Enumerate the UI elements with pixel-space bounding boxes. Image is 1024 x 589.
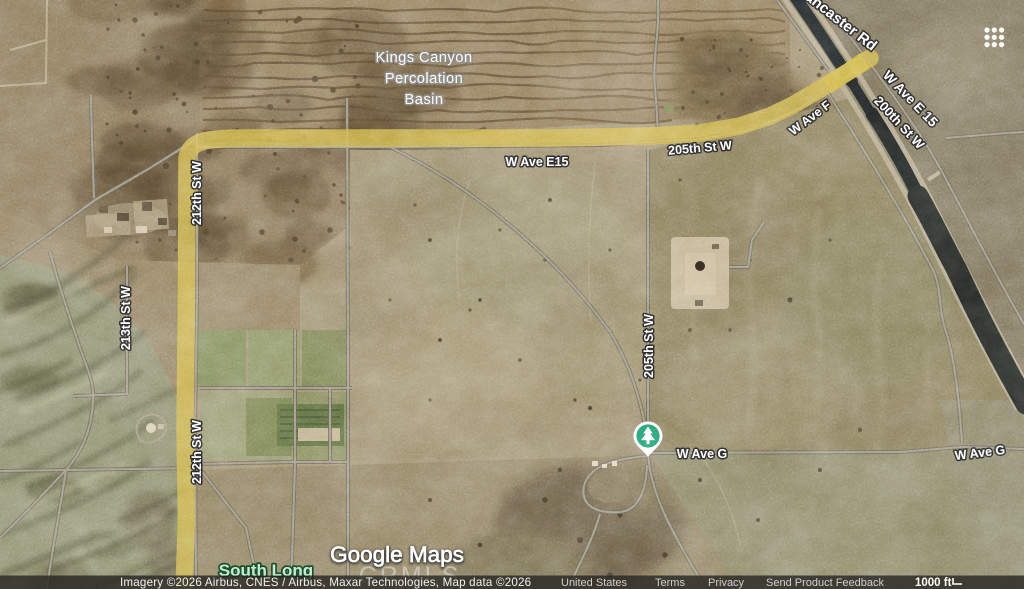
svg-text:Google Maps: Google Maps bbox=[330, 542, 464, 567]
svg-text:Privacy: Privacy bbox=[708, 577, 745, 589]
svg-text:1000 ft: 1000 ft bbox=[915, 577, 952, 589]
svg-text:Send Product Feedback: Send Product Feedback bbox=[766, 577, 885, 589]
svg-text:Terms: Terms bbox=[655, 577, 685, 589]
svg-text:United States: United States bbox=[561, 577, 628, 589]
svg-text:Imagery ©2026 Airbus, CNES / A: Imagery ©2026 Airbus, CNES / Airbus, Max… bbox=[120, 576, 531, 589]
